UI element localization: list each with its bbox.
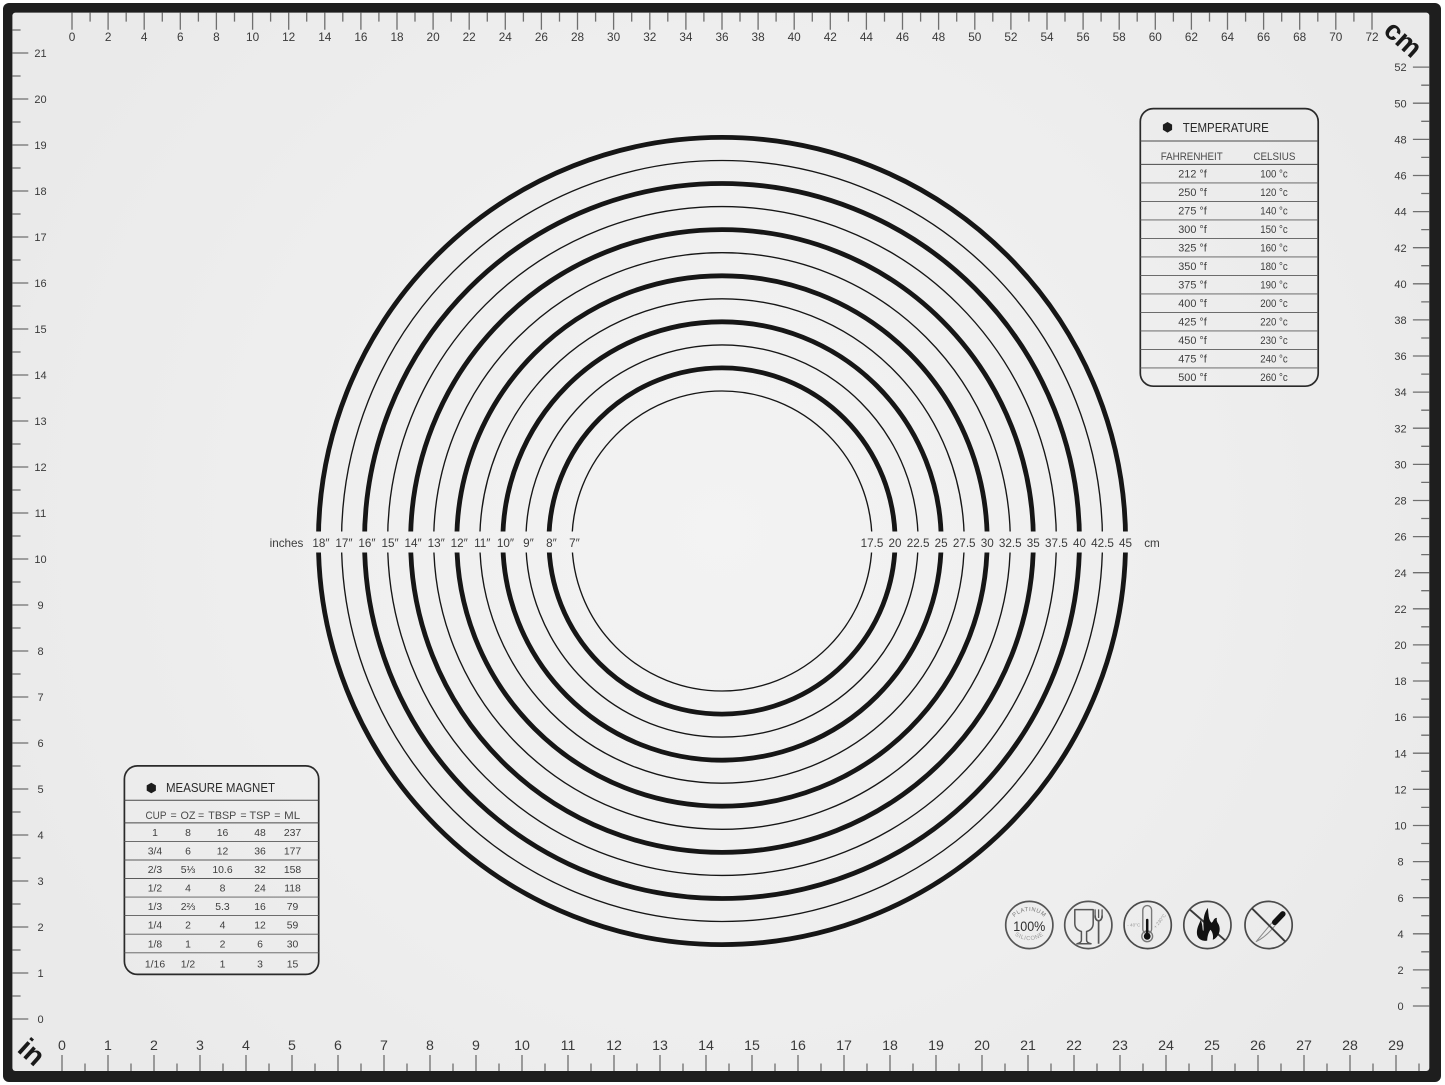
svg-text:18: 18 <box>1394 676 1406 688</box>
svg-text:200 °c: 200 °c <box>1260 298 1288 310</box>
svg-text:140 °c: 140 °c <box>1260 206 1288 218</box>
svg-text:11: 11 <box>561 1038 576 1054</box>
svg-text:17.5: 17.5 <box>861 537 884 550</box>
svg-text:44: 44 <box>860 30 874 44</box>
svg-text:68: 68 <box>1293 30 1307 44</box>
svg-text:2: 2 <box>37 922 43 934</box>
svg-text:30: 30 <box>607 30 621 44</box>
svg-text:CELSIUS: CELSIUS <box>1253 151 1295 163</box>
svg-text:16: 16 <box>217 828 229 839</box>
svg-text:27: 27 <box>1296 1038 1312 1054</box>
svg-text:190 °c: 190 °c <box>1260 280 1288 292</box>
svg-text:500 °f: 500 °f <box>1178 372 1207 384</box>
svg-text:16: 16 <box>34 278 46 290</box>
svg-text:48: 48 <box>1394 135 1406 147</box>
svg-text:18″: 18″ <box>312 537 329 550</box>
svg-text:20: 20 <box>1394 640 1406 652</box>
svg-text:40: 40 <box>1073 537 1087 550</box>
svg-text:16: 16 <box>254 902 266 913</box>
svg-text:12: 12 <box>217 847 229 858</box>
svg-text:0: 0 <box>69 30 76 44</box>
svg-text:5: 5 <box>37 784 43 796</box>
svg-text:475 °f: 475 °f <box>1178 354 1207 366</box>
svg-text:260 °c: 260 °c <box>1260 372 1288 384</box>
svg-text:42: 42 <box>1394 243 1406 255</box>
svg-text:42: 42 <box>824 30 837 44</box>
svg-text:=: = <box>198 810 204 822</box>
svg-text:13″: 13″ <box>428 537 445 550</box>
svg-text:21: 21 <box>34 48 46 60</box>
svg-text:20: 20 <box>427 30 441 44</box>
svg-text:1: 1 <box>185 939 191 950</box>
svg-text:15″: 15″ <box>382 537 399 550</box>
svg-text:62: 62 <box>1185 30 1198 44</box>
svg-text:9″: 9″ <box>523 537 534 550</box>
svg-text:3: 3 <box>196 1038 204 1054</box>
svg-text:8: 8 <box>426 1038 434 1054</box>
svg-text:12: 12 <box>1394 784 1406 796</box>
svg-text:10: 10 <box>34 554 46 566</box>
svg-text:14: 14 <box>1394 748 1406 760</box>
svg-text:25: 25 <box>935 537 949 550</box>
svg-text:=: = <box>240 810 246 822</box>
svg-text:300 °f: 300 °f <box>1178 224 1207 236</box>
svg-text:11″: 11″ <box>474 537 490 550</box>
svg-text:50: 50 <box>968 30 982 44</box>
svg-text:4: 4 <box>185 884 191 895</box>
svg-text:32: 32 <box>1394 423 1406 435</box>
svg-text:TEMPERATURE: TEMPERATURE <box>1183 120 1269 135</box>
svg-text:20: 20 <box>888 537 902 550</box>
svg-text:24: 24 <box>499 30 513 44</box>
svg-text:22: 22 <box>1394 604 1406 616</box>
svg-text:34: 34 <box>1394 387 1406 399</box>
svg-text:48: 48 <box>932 30 946 44</box>
svg-text:1/16: 1/16 <box>145 959 165 970</box>
svg-text:2: 2 <box>150 1038 158 1054</box>
svg-text:26: 26 <box>535 30 549 44</box>
svg-text:2: 2 <box>220 939 226 950</box>
svg-text:8: 8 <box>1397 857 1403 869</box>
svg-text:325 °f: 325 °f <box>1178 243 1207 255</box>
svg-text:5: 5 <box>288 1038 296 1054</box>
svg-text:10: 10 <box>514 1038 530 1054</box>
svg-text:26: 26 <box>1394 532 1406 544</box>
svg-text:22: 22 <box>1066 1038 1082 1054</box>
svg-text:- 40°C: - 40°C <box>1127 922 1141 927</box>
svg-text:0: 0 <box>37 1014 43 1026</box>
svg-text:44: 44 <box>1394 207 1406 219</box>
svg-text:8: 8 <box>37 646 43 658</box>
svg-text:0: 0 <box>1397 1001 1403 1013</box>
svg-text:36: 36 <box>254 847 266 858</box>
svg-text:6: 6 <box>185 847 191 858</box>
svg-text:23: 23 <box>1112 1038 1128 1054</box>
svg-text:inches: inches <box>270 537 304 550</box>
svg-text:18: 18 <box>882 1038 898 1054</box>
svg-text:10.6: 10.6 <box>212 865 232 876</box>
svg-text:CUP: CUP <box>146 810 167 822</box>
svg-text:28: 28 <box>1394 496 1406 508</box>
svg-text:38: 38 <box>1394 315 1406 327</box>
svg-text:64: 64 <box>1221 30 1235 44</box>
svg-text:56: 56 <box>1077 30 1091 44</box>
svg-text:24: 24 <box>1158 1038 1174 1054</box>
svg-text:28: 28 <box>1342 1038 1358 1054</box>
svg-text:8″: 8″ <box>546 537 557 550</box>
svg-text:1: 1 <box>220 959 226 970</box>
svg-text:32: 32 <box>643 30 656 44</box>
svg-text:1/2: 1/2 <box>181 959 196 970</box>
svg-text:14: 14 <box>698 1038 714 1054</box>
svg-text:60: 60 <box>1149 30 1163 44</box>
svg-text:100%: 100% <box>1013 919 1045 934</box>
svg-text:30: 30 <box>981 537 995 550</box>
svg-text:18: 18 <box>34 186 46 198</box>
svg-text:cm: cm <box>1144 537 1160 550</box>
svg-text:120 °c: 120 °c <box>1260 187 1288 199</box>
svg-text:72: 72 <box>1365 30 1378 44</box>
svg-text:16: 16 <box>790 1038 806 1054</box>
svg-text:1/2: 1/2 <box>148 884 163 895</box>
svg-text:17: 17 <box>836 1038 852 1054</box>
svg-text:6: 6 <box>1397 893 1403 905</box>
svg-text:2: 2 <box>185 921 191 932</box>
svg-text:58: 58 <box>1113 30 1127 44</box>
svg-text:177: 177 <box>284 847 302 858</box>
svg-text:46: 46 <box>896 30 910 44</box>
svg-text:3: 3 <box>257 959 263 970</box>
svg-text:11: 11 <box>35 508 46 520</box>
svg-text:FAHRENHEIT: FAHRENHEIT <box>1161 151 1223 163</box>
svg-text:1/8: 1/8 <box>148 939 163 950</box>
svg-text:17: 17 <box>34 232 46 244</box>
svg-text:275 °f: 275 °f <box>1178 206 1207 218</box>
svg-text:54: 54 <box>1040 30 1054 44</box>
svg-text:12: 12 <box>34 462 46 474</box>
svg-text:118: 118 <box>284 884 301 895</box>
svg-text:1: 1 <box>152 828 158 839</box>
svg-text:6: 6 <box>37 738 43 750</box>
svg-text:7: 7 <box>380 1038 388 1054</box>
svg-text:26: 26 <box>1250 1038 1266 1054</box>
svg-text:19: 19 <box>928 1038 944 1054</box>
svg-text:7: 7 <box>37 692 43 704</box>
svg-text:16: 16 <box>1394 712 1406 724</box>
svg-text:14: 14 <box>318 30 332 44</box>
svg-text:25: 25 <box>1204 1038 1220 1054</box>
svg-text:27.5: 27.5 <box>953 537 976 550</box>
svg-text:4: 4 <box>141 30 148 44</box>
svg-text:42.5: 42.5 <box>1091 537 1114 550</box>
svg-text:0: 0 <box>58 1038 66 1054</box>
svg-text:19: 19 <box>34 140 46 152</box>
svg-text:MEASURE MAGNET: MEASURE MAGNET <box>166 780 275 795</box>
svg-text:15: 15 <box>34 324 46 336</box>
svg-text:4: 4 <box>37 830 43 842</box>
svg-text:10″: 10″ <box>497 537 514 550</box>
svg-text:9: 9 <box>37 600 43 612</box>
svg-text:4: 4 <box>220 921 226 932</box>
svg-text:16″: 16″ <box>358 537 375 550</box>
svg-text:350 °f: 350 °f <box>1178 261 1207 273</box>
svg-text:59: 59 <box>287 921 299 932</box>
svg-text:1: 1 <box>104 1038 112 1054</box>
svg-text:2/3: 2/3 <box>148 865 163 876</box>
svg-text:18: 18 <box>390 30 404 44</box>
svg-text:36: 36 <box>715 30 729 44</box>
svg-text:10: 10 <box>1394 821 1406 833</box>
svg-text:34: 34 <box>679 30 693 44</box>
svg-text:50: 50 <box>1394 98 1406 110</box>
svg-text:237: 237 <box>284 828 302 839</box>
svg-text:8: 8 <box>213 30 220 44</box>
svg-text:40: 40 <box>1394 279 1406 291</box>
svg-text:160 °c: 160 °c <box>1260 243 1288 255</box>
svg-text:16: 16 <box>354 30 368 44</box>
svg-text:1/3: 1/3 <box>148 902 163 913</box>
svg-text:=: = <box>274 810 280 822</box>
svg-text:4: 4 <box>1397 929 1403 941</box>
svg-text:30: 30 <box>1394 460 1406 472</box>
svg-text:100 °c: 100 °c <box>1260 169 1288 181</box>
svg-text:70: 70 <box>1329 30 1343 44</box>
svg-text:36: 36 <box>1394 351 1406 363</box>
svg-text:48: 48 <box>254 828 266 839</box>
svg-text:400 °f: 400 °f <box>1178 298 1207 310</box>
svg-text:5.3: 5.3 <box>215 902 230 913</box>
svg-text:1: 1 <box>37 968 43 980</box>
svg-text:1/4: 1/4 <box>148 921 163 932</box>
svg-text:10: 10 <box>246 30 260 44</box>
svg-text:6: 6 <box>257 939 263 950</box>
svg-text:17″: 17″ <box>335 537 352 550</box>
svg-text:12″: 12″ <box>451 537 468 550</box>
svg-text:12: 12 <box>254 921 266 932</box>
svg-text:7″: 7″ <box>569 537 580 550</box>
svg-text:40: 40 <box>788 30 802 44</box>
svg-text:2: 2 <box>1397 965 1403 977</box>
svg-text:22.5: 22.5 <box>907 537 930 550</box>
svg-text:3: 3 <box>37 876 43 888</box>
svg-text:66: 66 <box>1257 30 1271 44</box>
svg-text:15: 15 <box>744 1038 760 1054</box>
svg-text:TSP: TSP <box>250 810 271 822</box>
svg-text:24: 24 <box>1394 568 1406 580</box>
svg-text:20: 20 <box>974 1038 990 1054</box>
svg-text:28: 28 <box>571 30 585 44</box>
svg-text:14″: 14″ <box>405 537 422 550</box>
svg-text:4: 4 <box>242 1038 250 1054</box>
svg-text:12: 12 <box>606 1038 622 1054</box>
svg-text:2: 2 <box>105 30 112 44</box>
svg-text:32.5: 32.5 <box>999 537 1022 550</box>
svg-text:15: 15 <box>287 959 299 970</box>
svg-text:6: 6 <box>177 30 184 44</box>
svg-text:212 °f: 212 °f <box>1178 169 1207 181</box>
svg-text:5⅓: 5⅓ <box>181 865 196 876</box>
svg-text:52: 52 <box>1394 62 1406 74</box>
svg-text:30: 30 <box>287 939 299 950</box>
svg-text:250 °f: 250 °f <box>1178 187 1207 199</box>
svg-text:425 °f: 425 °f <box>1178 317 1207 329</box>
svg-text:6: 6 <box>334 1038 342 1054</box>
svg-text:220 °c: 220 °c <box>1260 317 1288 329</box>
svg-text:375 °f: 375 °f <box>1178 280 1207 292</box>
svg-text:180 °c: 180 °c <box>1260 261 1288 273</box>
svg-text:OZ: OZ <box>181 810 197 822</box>
svg-text:22: 22 <box>463 30 476 44</box>
svg-text:8: 8 <box>185 828 191 839</box>
svg-text:12: 12 <box>282 30 295 44</box>
svg-text:450 °f: 450 °f <box>1178 335 1207 347</box>
svg-text:240 °c: 240 °c <box>1260 354 1288 366</box>
svg-text:=: = <box>171 810 177 822</box>
svg-text:79: 79 <box>287 902 299 913</box>
svg-text:35: 35 <box>1027 537 1041 550</box>
svg-text:29: 29 <box>1388 1038 1404 1054</box>
svg-text:TBSP: TBSP <box>208 810 236 822</box>
svg-text:3/4: 3/4 <box>148 847 163 858</box>
svg-text:46: 46 <box>1394 171 1406 183</box>
svg-text:13: 13 <box>34 416 46 428</box>
svg-text:14: 14 <box>34 370 46 382</box>
svg-text:158: 158 <box>284 865 302 876</box>
svg-text:52: 52 <box>1004 30 1017 44</box>
svg-text:2⅔: 2⅔ <box>181 902 196 913</box>
svg-text:32: 32 <box>254 865 266 876</box>
svg-text:9: 9 <box>472 1038 480 1054</box>
svg-text:13: 13 <box>652 1038 668 1054</box>
svg-text:24: 24 <box>254 884 266 895</box>
svg-text:230 °c: 230 °c <box>1260 335 1288 347</box>
svg-text:21: 21 <box>1020 1038 1036 1054</box>
svg-text:37.5: 37.5 <box>1045 537 1068 550</box>
svg-text:8: 8 <box>220 884 226 895</box>
svg-text:38: 38 <box>752 30 766 44</box>
svg-text:150 °c: 150 °c <box>1260 224 1288 236</box>
svg-text:ML: ML <box>284 810 300 822</box>
svg-text:20: 20 <box>34 94 46 106</box>
svg-text:45: 45 <box>1119 537 1133 550</box>
